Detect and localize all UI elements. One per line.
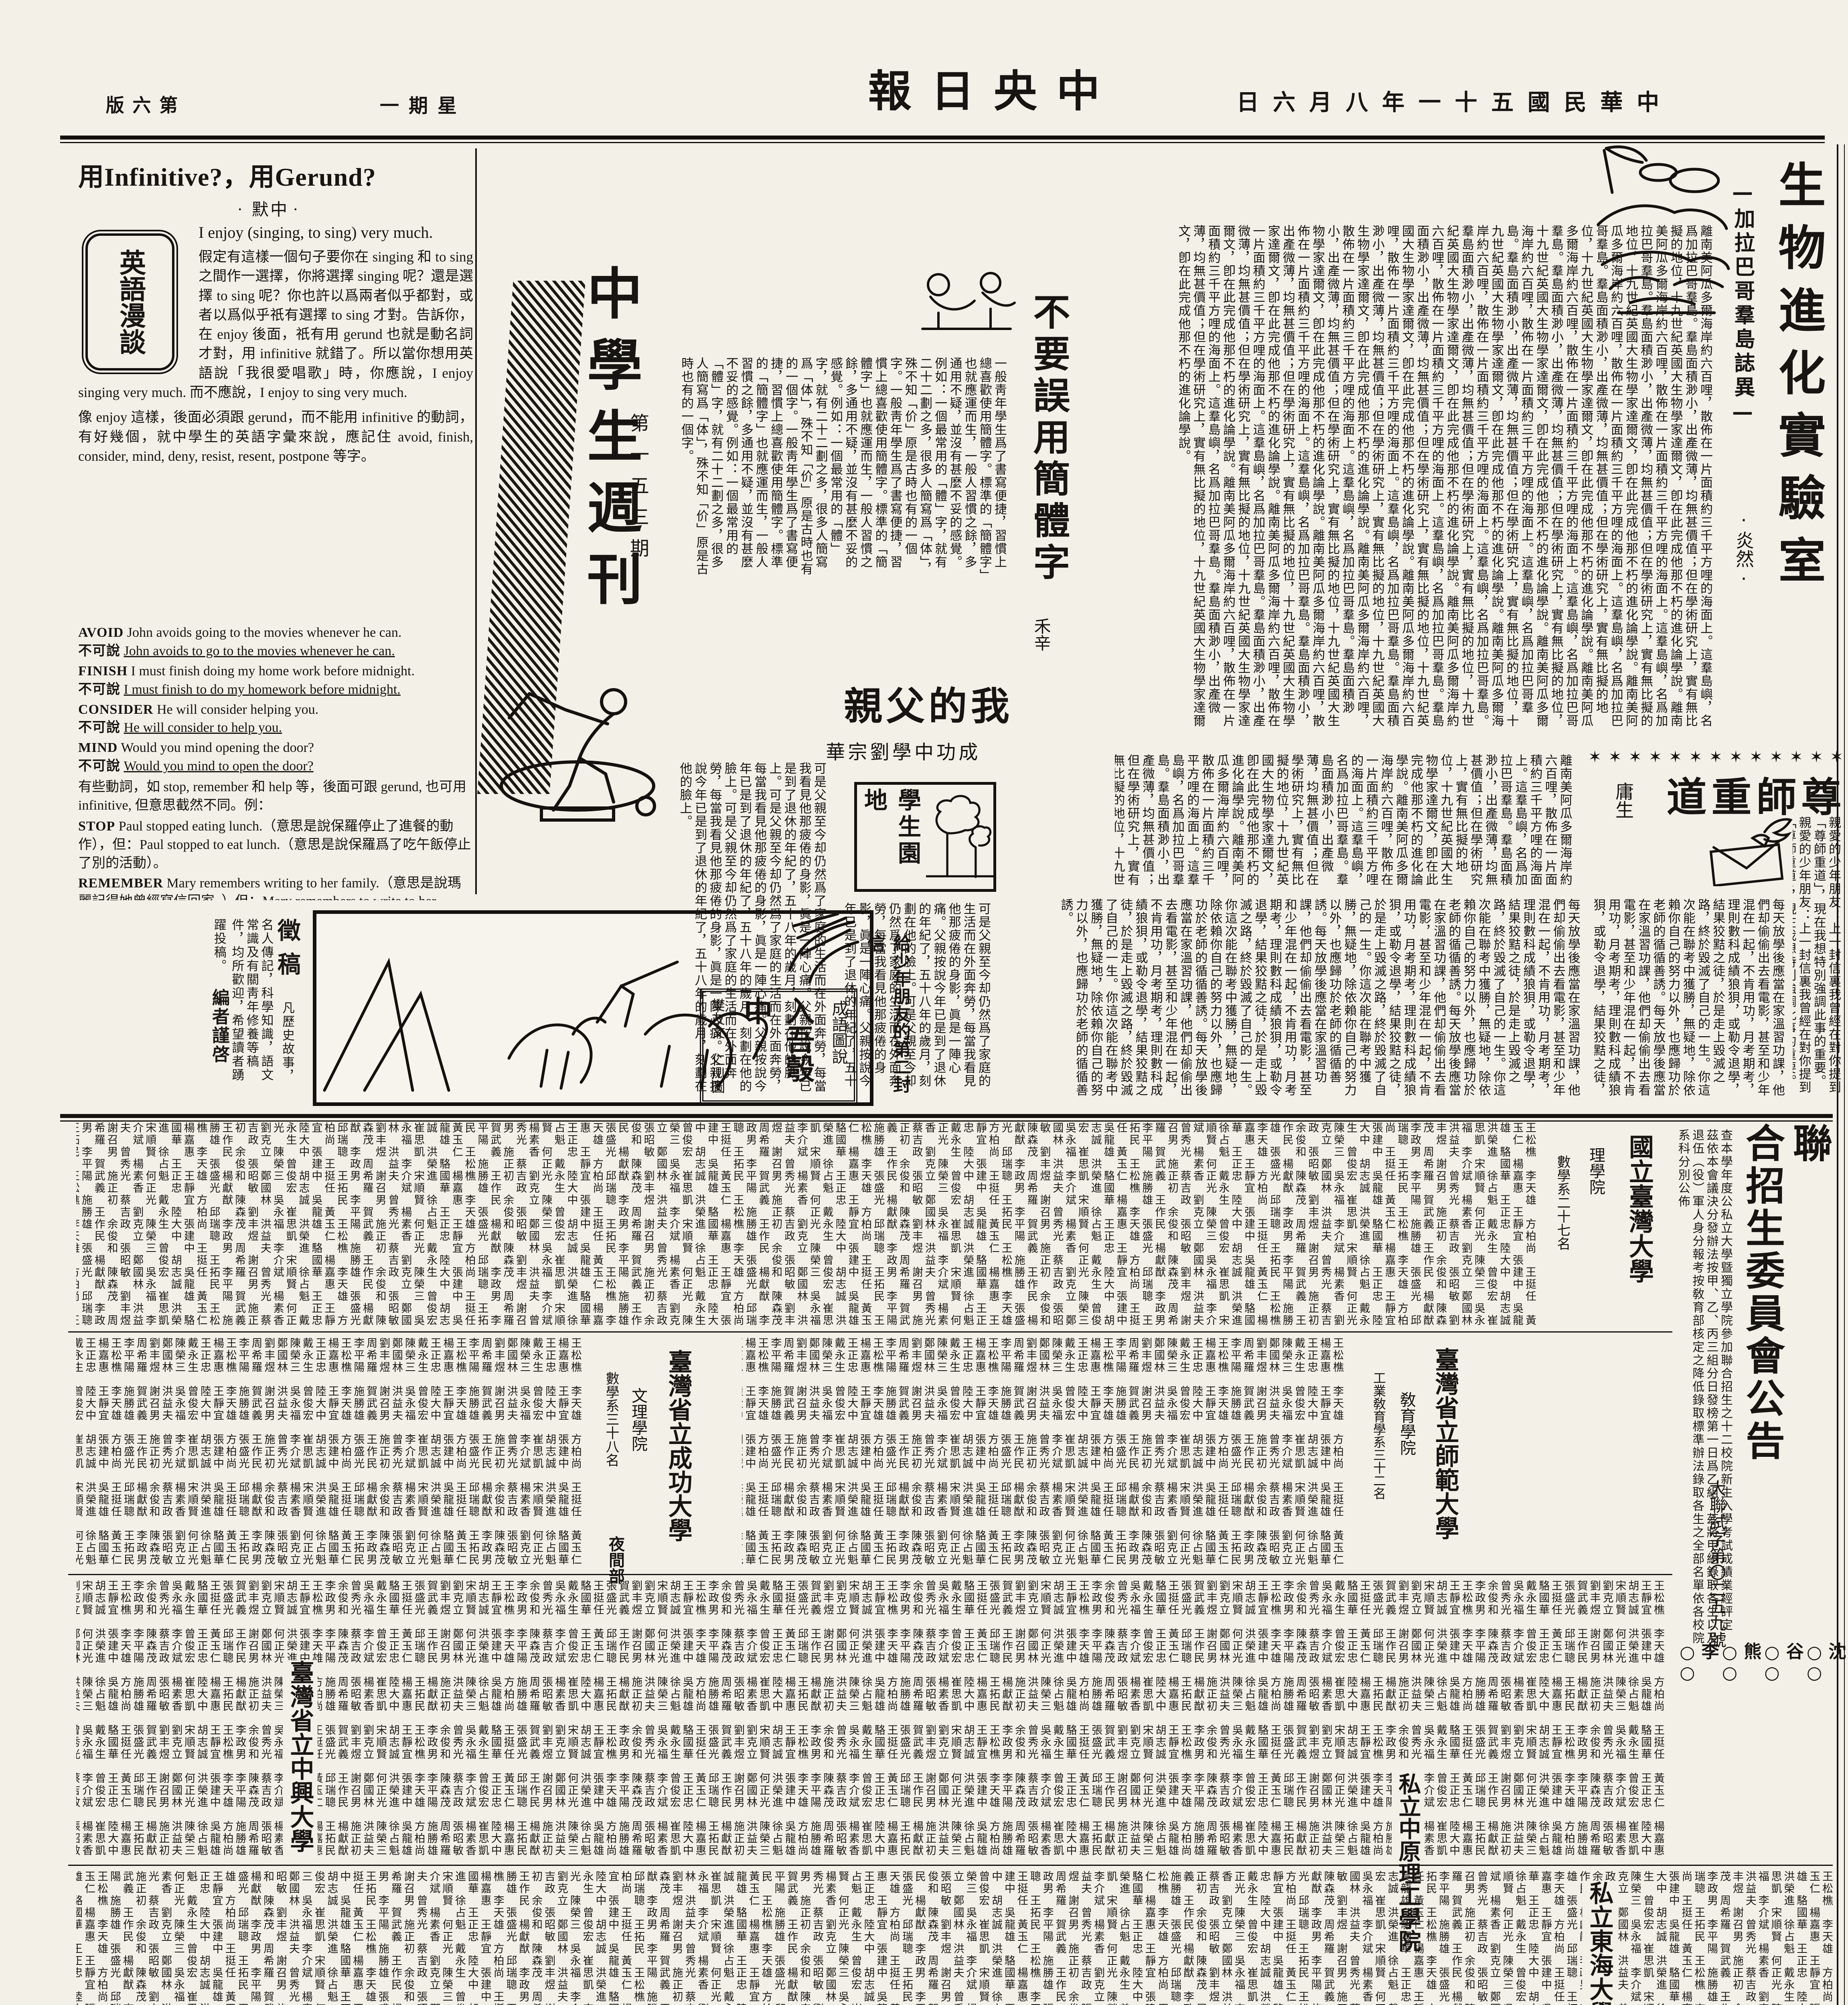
example-keyword: REMEMBER (78, 876, 163, 891)
call-for-papers-title: 徵稿 (274, 918, 301, 986)
example-keyword: MIND (78, 740, 118, 755)
flourish-border: ✶ ✶ ✶ ✶ ✶ ✶ ✶ ✶ ✶ ✶ ✶ ✶ ✶ ✶ ✶ ✶ ✶ ✶ ✶ ✶ … (1588, 748, 1845, 769)
dove-envelope-icon (1704, 816, 1793, 886)
father-article-byline: 成功中學 劉宗華 (822, 742, 977, 764)
idiom-feature-label: 成語圖說 (827, 1000, 850, 1092)
bad-label: 不可說 (78, 720, 120, 735)
english-examples: AVOID John avoids going to the movies wh… (78, 624, 473, 900)
section-label-thu: 私立東海大學 (1582, 1881, 1617, 2005)
example-keyword: CONSIDER (78, 702, 153, 717)
example-good: John avoids going to the movies whenever… (127, 625, 402, 640)
name-list-band-1: 王松樵 李天雄 方柏尚 王挺任 黃玉仁 楊嘉惠 王靜宜 張建中 吳龍雄 駱國華 … (76, 1122, 1536, 1329)
english-column-author: ·中默· (231, 200, 305, 219)
admission-headline-1: 五十一學年度大學曁獨立學院聯 (1781, 1123, 1848, 1660)
english-column-title: 用Infinitive?，用Gerund? (78, 156, 473, 193)
example-bad: I must finish to do my homework before m… (124, 682, 401, 697)
example-finish: FINISH I must finish doing my home work … (78, 662, 473, 699)
name-list-band-2-mid: 王松樵 李天雄 方柏尚 王挺任 黃玉仁 楊嘉惠 王靜宜 張建中 吳龍雄 駱國華 … (742, 1337, 1343, 1570)
section-label-ntnu: 臺灣省立師範大學 (1428, 1347, 1463, 1548)
father-article-title: 我的父親 (838, 686, 1007, 726)
example-keyword: AVOID (78, 625, 124, 640)
dept-label-ncku: 數學系三十八名 (602, 1371, 621, 1516)
example-bad: Would you mind to open the door? (124, 759, 314, 774)
band-rule-1 (68, 1331, 1672, 1333)
college-label-ncku: 文理學院 (626, 1387, 650, 1472)
idiom-credits: 樊友文 仁川圖 (707, 998, 727, 1094)
respect-letter-body-2: 每天放學後應當在家溫習功課，他們却偷偷出去看電影，甚至和少年混在一起，不肯用功，… (898, 898, 1580, 1099)
idiom-art-credit: 仁川圖 (709, 1053, 725, 1094)
college-label-ntu: 理學院 (1584, 1147, 1607, 1219)
simplified-article-title: 不要誤用簡體字 (1022, 293, 1075, 610)
newspaper-page: 第六版 星期一 中央日報 中華民國五十一年八月六日 用Infinitive?，用… (0, 0, 1848, 2005)
simplified-article-body: 一般靑年學生爲了書寫便捷，習慣上總喜歡使用簡體字。標準的「簡體字」也就應運而生，… (662, 357, 1007, 581)
page-edge-rule-2 (1844, 144, 1845, 2005)
example-remember: REMEMBER Mary remembers writing to her f… (78, 874, 473, 900)
name-list-band-4: 王松樵 李天雄 方柏尚 王挺任 黃玉仁 楊嘉惠 王靜宜 張建中 吳龍雄 駱國華 … (76, 1871, 1833, 2005)
section-label-ntu: 國立臺灣大學 (1621, 1134, 1657, 1294)
trees-illustration (926, 785, 993, 883)
english-column-badge: 英語漫談 (85, 233, 174, 371)
dept-label-ntu: 數學系二十七名 (1553, 1155, 1572, 1283)
example-consider: CONSIDER He will consider helping you. 不… (78, 701, 473, 737)
evolution-article-body-2: 離南美阿瓜多爾海岸約六百哩，散佈在一片面積約三千平方哩的海面上。這羣島嶼，名爲加… (1115, 754, 1572, 886)
call-for-papers: 徵稿 凡歷史故事，名人傳記，科學知識，語文常識及有關靑年修養等稿件，均所歡迎，希… (84, 918, 301, 1095)
masthead-title: 中央日報 (854, 68, 1105, 116)
example-bad: He will consider to help you. (124, 720, 282, 735)
name-list-band-2-left: 王松樵 李天雄 方柏尚 王挺任 黃玉仁 楊嘉惠 王靜宜 張建中 吳龍雄 駱國華 … (76, 1337, 582, 1570)
college-label-ntnu: 敎育學院 (1395, 1391, 1418, 1484)
evolution-article-body: 離南美阿瓜多爾海岸約六百哩，散佈在一片面積約三千平方哩的海面上。這羣島嶼，名爲加… (1115, 225, 1712, 738)
bad-label: 不可說 (78, 759, 120, 774)
admission-committee: 郭○○ 劉○○ 施○○ 施○○ 沈○○ 谷○○ 熊○○ 李○○ (1676, 1642, 1848, 1663)
respect-letter-opening: 親愛的少年朋友：上一封信裏我曾經在對你提到「尊師重道」，現在我想特別強調此事的重… (1793, 816, 1841, 1097)
bad-label: 不可說 (78, 644, 120, 658)
weekly-divider (475, 148, 477, 894)
admission-headline-2: 合招生委員會公告 (1733, 1123, 1790, 1468)
example-avoid: AVOID John avoids going to the movies wh… (78, 624, 473, 660)
idiom-title: 入吾彀中 (735, 996, 819, 1096)
example-good: Would you mind opening the door? (121, 740, 314, 755)
header-rule (60, 136, 1825, 146)
english-paragraph: 有些動詞，如 stop, remember 和 help 等，後面可跟 geru… (78, 778, 473, 815)
weekly-issue: 第一五三期 (624, 413, 652, 630)
admission-preamble: 查本學年度公私立大學曁獨立學院參加聯合招生之十二校院新生入學考試成績業經評定 茲… (1676, 1129, 1732, 1654)
respect-series-label: 給少年朋友的第二封信 (861, 934, 913, 1103)
weekday-label: 星期一 (373, 95, 460, 120)
idiom-text-credit: 樊友文 (709, 998, 725, 1039)
masthead-date: 中華民國五十一年八月六日 (1227, 90, 1664, 117)
respect-article-title: 尊師重道 (1660, 776, 1840, 820)
edition-label: 第六版 (100, 95, 180, 119)
idiom-box: 成語圖說 入吾彀中 樊友文 仁川圖 (700, 988, 857, 1104)
evolution-article-title: 生物進化實驗室 (1764, 160, 1832, 674)
band-rule-2 (68, 1574, 1672, 1575)
respect-letter-body: 每天放學後應當在家溫習功課，他們却偷偷出去看電影，甚至和少年混在一起，不肯用功，… (1592, 898, 1785, 1099)
example-mind: MIND Would you mind opening the door? 不可… (78, 739, 473, 776)
section-label-ncku: 臺灣省立成功大學 (661, 1349, 696, 1550)
example-good: I must finish doing my home work before … (131, 664, 415, 678)
example-bad: John avoids to go to the movies whenever… (124, 644, 395, 658)
student-garden-stamp-label: 學生園地 (857, 788, 924, 884)
example-keyword: FINISH (78, 664, 128, 678)
dept-label-ntnu: 工業敎育學系三十二名 (1370, 1371, 1388, 1560)
example-text: Paul stopped eating lunch.（意思是說保羅停止了進餐的動… (78, 819, 471, 871)
respect-article-author: 庸生 (1610, 782, 1637, 850)
student-garden-stamp: 學生園地 (854, 782, 996, 892)
example-stop: STOP Paul stopped eating lunch.（意思是說保羅停止… (78, 817, 473, 873)
bad-label: 不可說 (78, 682, 120, 697)
simplified-article-author: 禾辛 (1029, 618, 1054, 674)
band-rule-3 (68, 1865, 1833, 1866)
evolution-article-author: ·炎然· (1730, 509, 1757, 614)
english-paragraph: 像 enjoy 這樣，後面必須跟 gerund，而不能用 infinitive … (78, 408, 473, 466)
section-label-nchu: 臺灣省立中興大學 (283, 1660, 318, 1861)
reader-cartoon-icon (914, 265, 1019, 337)
example-keyword: STOP (78, 819, 115, 834)
example-good: He will consider helping you. (157, 702, 318, 717)
call-for-papers-signoff: 編者謹啓 (209, 988, 229, 1064)
evolution-article-subtitle: —加拉巴哥羣島誌異— (1728, 180, 1758, 485)
